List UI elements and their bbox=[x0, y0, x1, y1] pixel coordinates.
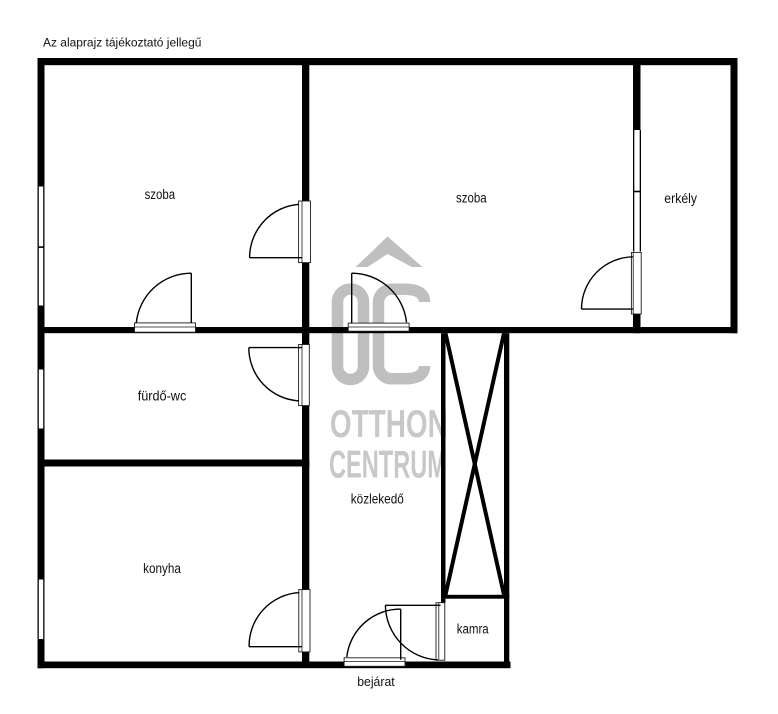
svg-text:bejárat: bejárat bbox=[357, 675, 395, 689]
svg-text:szoba: szoba bbox=[145, 187, 176, 202]
svg-text:kamra: kamra bbox=[457, 621, 489, 636]
svg-text:Az alaprajz tájékoztató jelleg: Az alaprajz tájékoztató jellegű bbox=[43, 36, 201, 50]
svg-text:szoba: szoba bbox=[456, 190, 487, 205]
svg-text:fürdő-wc: fürdő-wc bbox=[138, 388, 187, 403]
svg-text:CENTRUM: CENTRUM bbox=[329, 443, 447, 486]
svg-text:közlekedő: közlekedő bbox=[351, 491, 404, 506]
svg-text:konyha: konyha bbox=[143, 561, 181, 576]
svg-text:erkély: erkély bbox=[664, 191, 697, 206]
svg-text:OTTHON: OTTHON bbox=[330, 403, 448, 446]
